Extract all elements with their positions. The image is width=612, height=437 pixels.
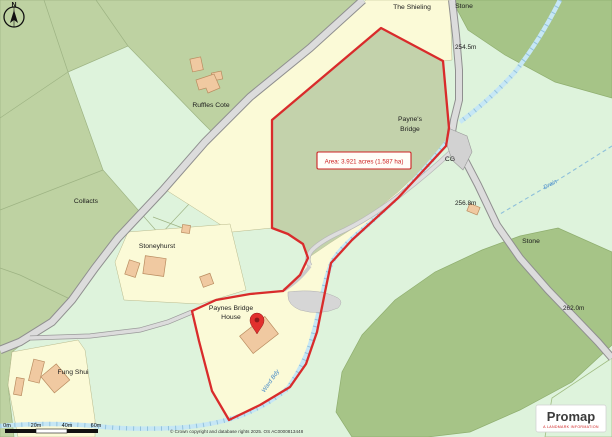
scale-tick-0: 0m: [3, 423, 11, 429]
logo-tagline: A LANDMARK INFORMATION: [543, 425, 599, 429]
label-spot-height-north: 254.5m: [455, 44, 476, 51]
map-canvas[interactable]: The Shieling Stone 254.5m Payne's Bridge…: [0, 0, 612, 437]
promap-map-window: The Shieling Stone 254.5m Payne's Bridge…: [0, 0, 612, 437]
scale-tick-60: 60m: [91, 423, 102, 429]
label-fung-shui: Fung Shui: [58, 369, 89, 376]
promap-logo: Promap A LANDMARK INFORMATION: [536, 405, 606, 432]
scale-segment-1: [5, 429, 36, 433]
logo-wordmark: Promap: [547, 409, 595, 424]
label-stoneyhurst: Stoneyhurst: [139, 243, 175, 250]
label-ruffles-cote: Ruffles Cote: [192, 102, 229, 109]
area-annotation[interactable]: Area: 3.921 acres (1.587 ha): [317, 152, 411, 169]
label-paynes-bridge-house-2: House: [221, 314, 241, 321]
area-text: Area: 3.921 acres (1.587 ha): [325, 159, 404, 166]
label-stone-north: Stone: [455, 3, 473, 10]
label-the-shieling: The Shieling: [393, 4, 431, 11]
building-stoneyhurst-1: [181, 224, 190, 233]
label-spot-height-mid: 256.8m: [455, 200, 476, 207]
compass-north-label: N: [11, 2, 16, 9]
label-paynes-bridge-house-1: Paynes Bridge: [209, 305, 253, 312]
scale-tick-40: 40m: [62, 423, 73, 429]
label-paynes-bridge-2: Bridge: [400, 126, 420, 133]
label-stone-east: Stone: [522, 238, 540, 245]
copyright-text: © Crown copyright and database rights 20…: [170, 428, 304, 434]
scale-tick-20: 20m: [31, 423, 42, 429]
building-stoneyhurst-main: [143, 256, 166, 277]
label-cg: CG: [445, 156, 455, 163]
label-collacts: Collacts: [74, 198, 99, 205]
label-spot-height-south: 262.0m: [563, 305, 584, 312]
scale-segment-2: [36, 429, 67, 433]
building-ruffles-1: [190, 57, 203, 72]
scale-segment-3: [67, 429, 98, 433]
label-paynes-bridge-1: Payne's: [398, 116, 423, 123]
